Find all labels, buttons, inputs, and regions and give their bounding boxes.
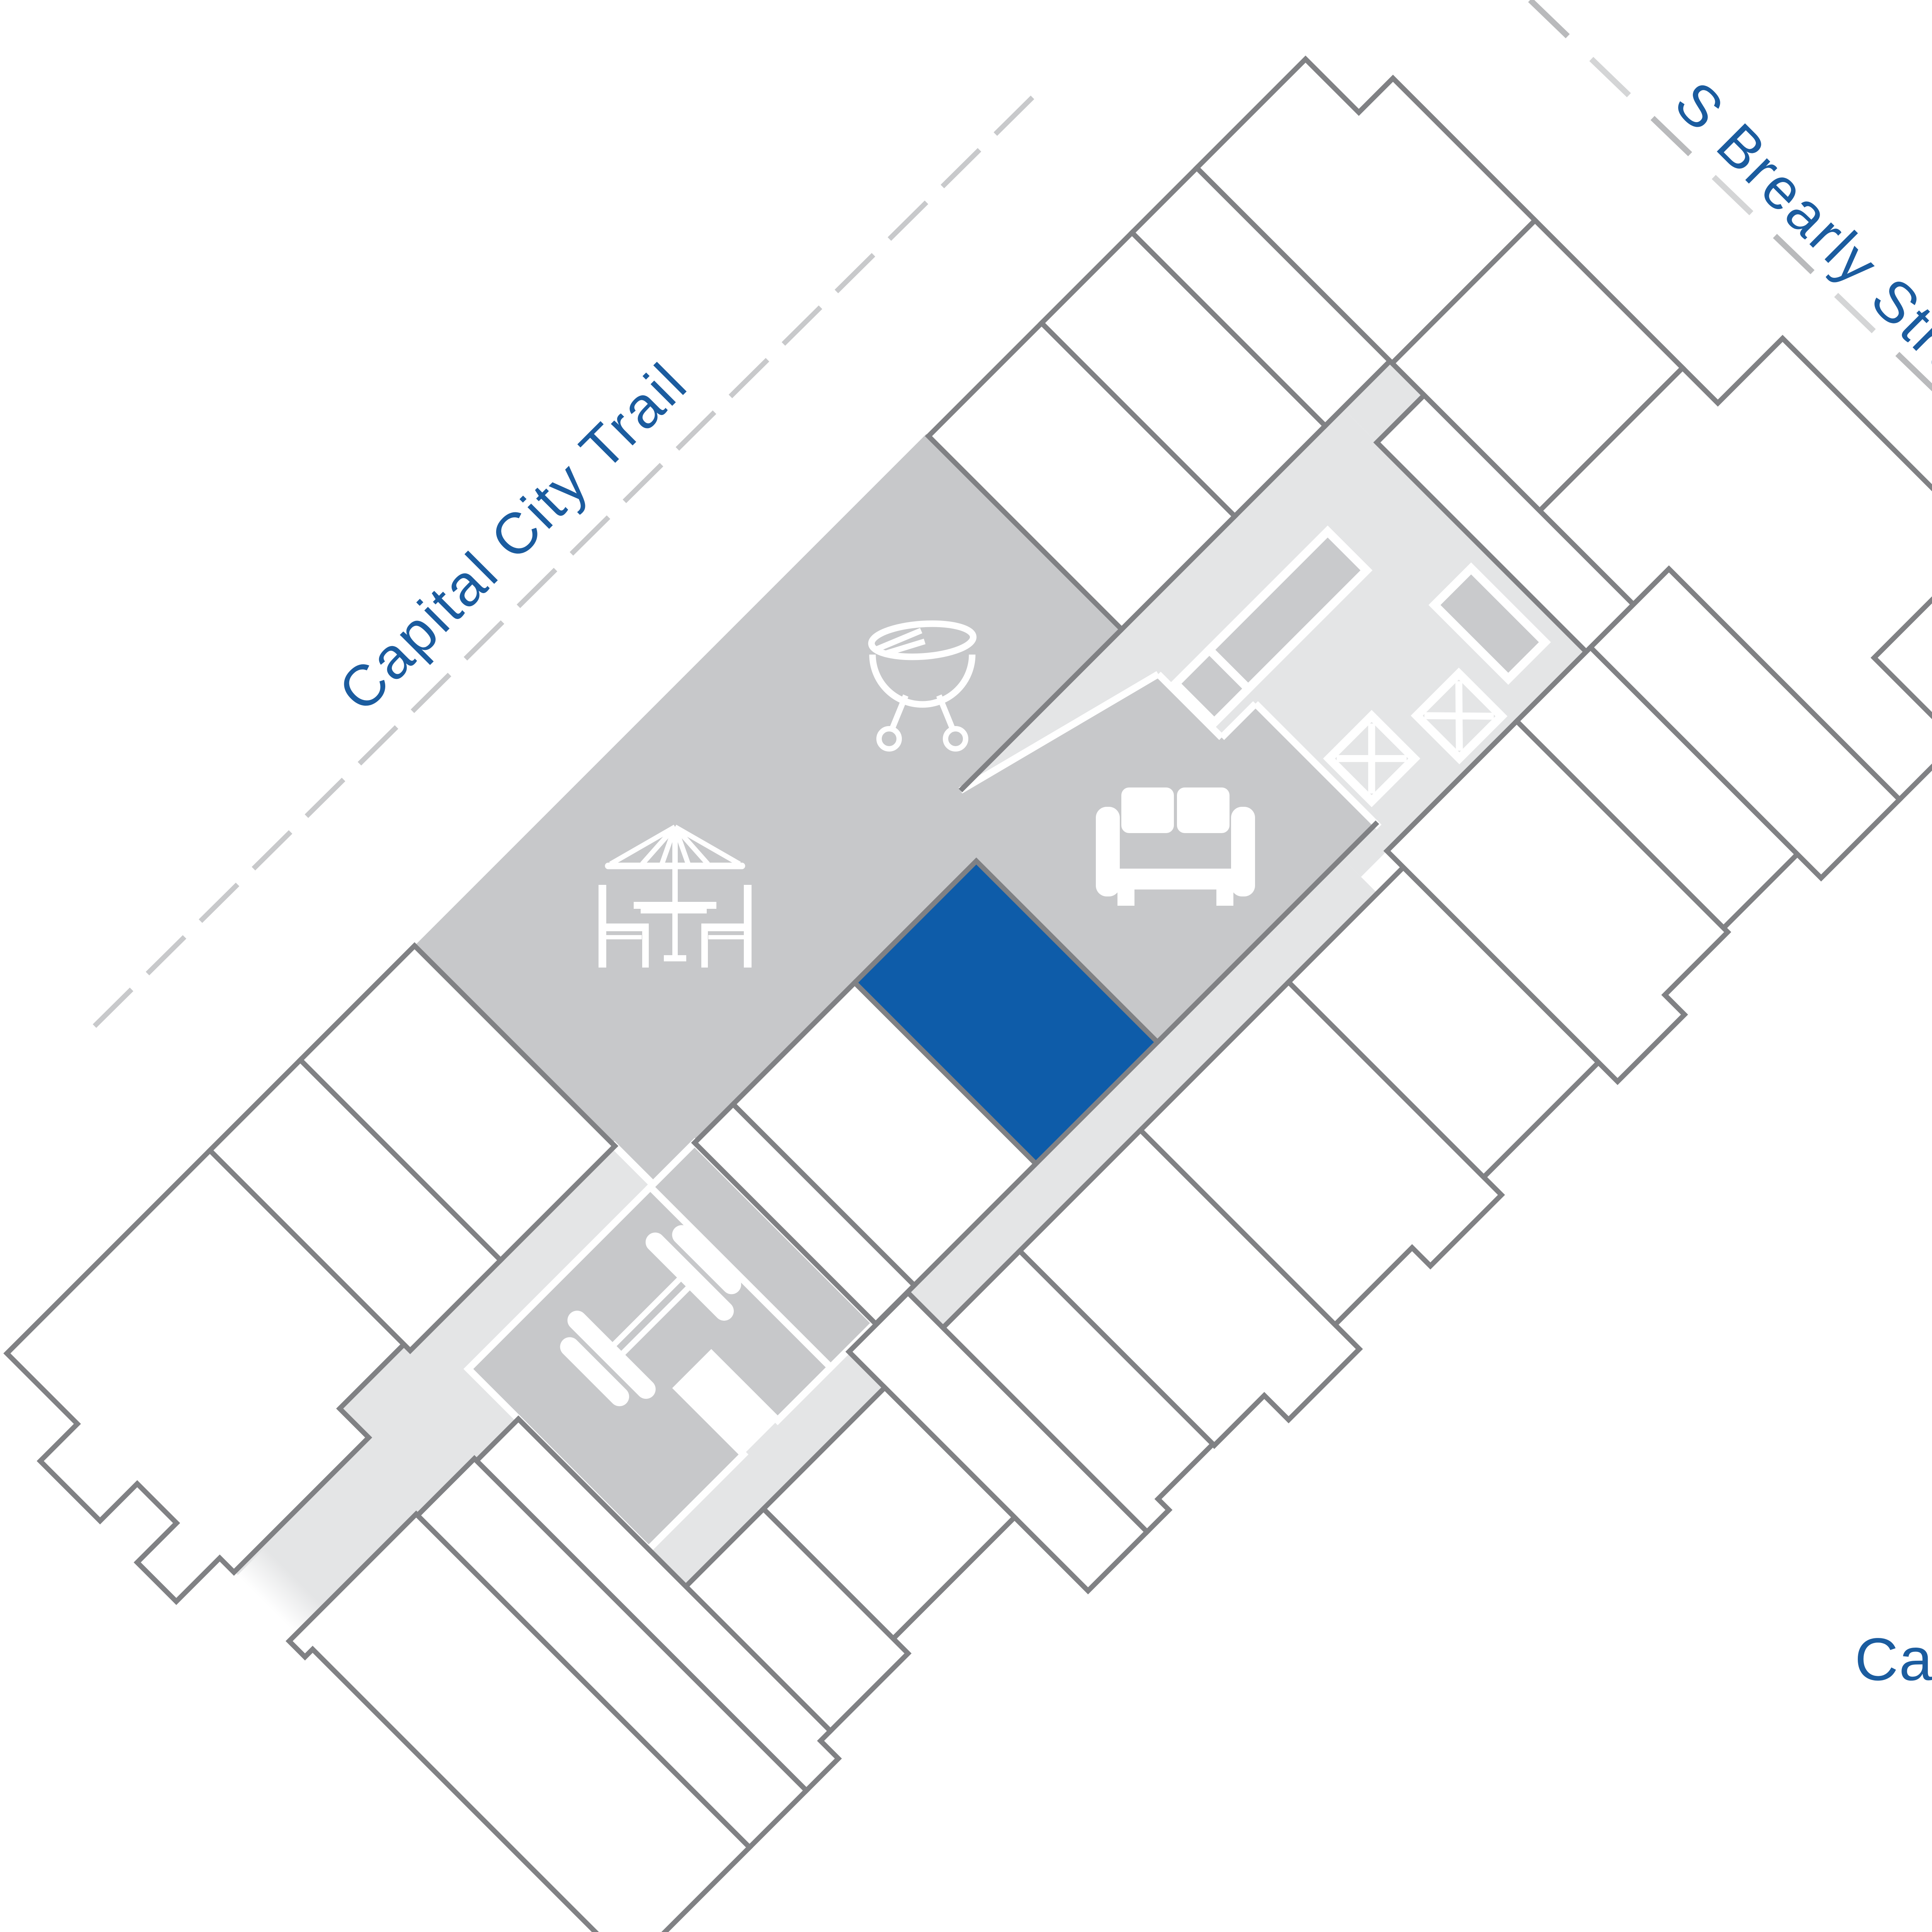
svg-text:Capitol: Capitol bbox=[1855, 1626, 1932, 1693]
